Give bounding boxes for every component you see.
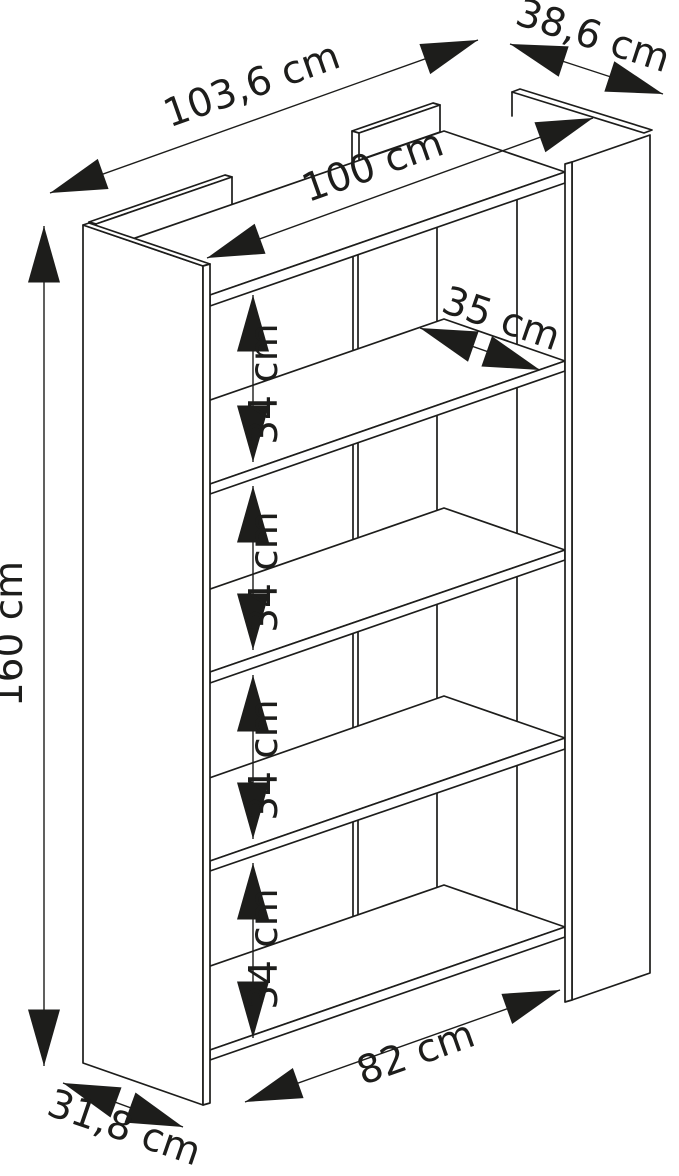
dimension-label-shelf-gap-4: 34 cm bbox=[242, 888, 287, 1009]
dimension-label-shelf-gap-3: 34 cm bbox=[242, 699, 287, 820]
dimension-shelf-gap-2: 34 cm bbox=[242, 486, 287, 650]
dimension-label-top-depth: 38,6 cm bbox=[510, 0, 675, 82]
left-side-panel bbox=[83, 223, 210, 1105]
dimension-shelf-gap-3: 34 cm bbox=[242, 675, 287, 839]
cabinet-drawing bbox=[83, 89, 652, 1105]
dimension-height: 160 cm bbox=[0, 226, 44, 1066]
dimension-label-height: 160 cm bbox=[0, 561, 32, 707]
dimension-top-depth: 38,6 cm bbox=[510, 0, 675, 94]
dimension-label-shelf-gap-2: 34 cm bbox=[242, 511, 287, 632]
dimension-label-shelf-gap-1: 34 cm bbox=[242, 323, 287, 444]
bookcase-dimension-diagram: 103,6 cm 38,6 cm 100 cm 35 cm 160 cm 34 … bbox=[0, 0, 679, 1176]
diagram-canvas: 103,6 cm 38,6 cm 100 cm 35 cm 160 cm 34 … bbox=[0, 0, 679, 1176]
dimension-label-bottom-inner-width: 82 cm bbox=[351, 1012, 481, 1095]
dimension-shelf-gap-1: 34 cm bbox=[242, 295, 287, 462]
